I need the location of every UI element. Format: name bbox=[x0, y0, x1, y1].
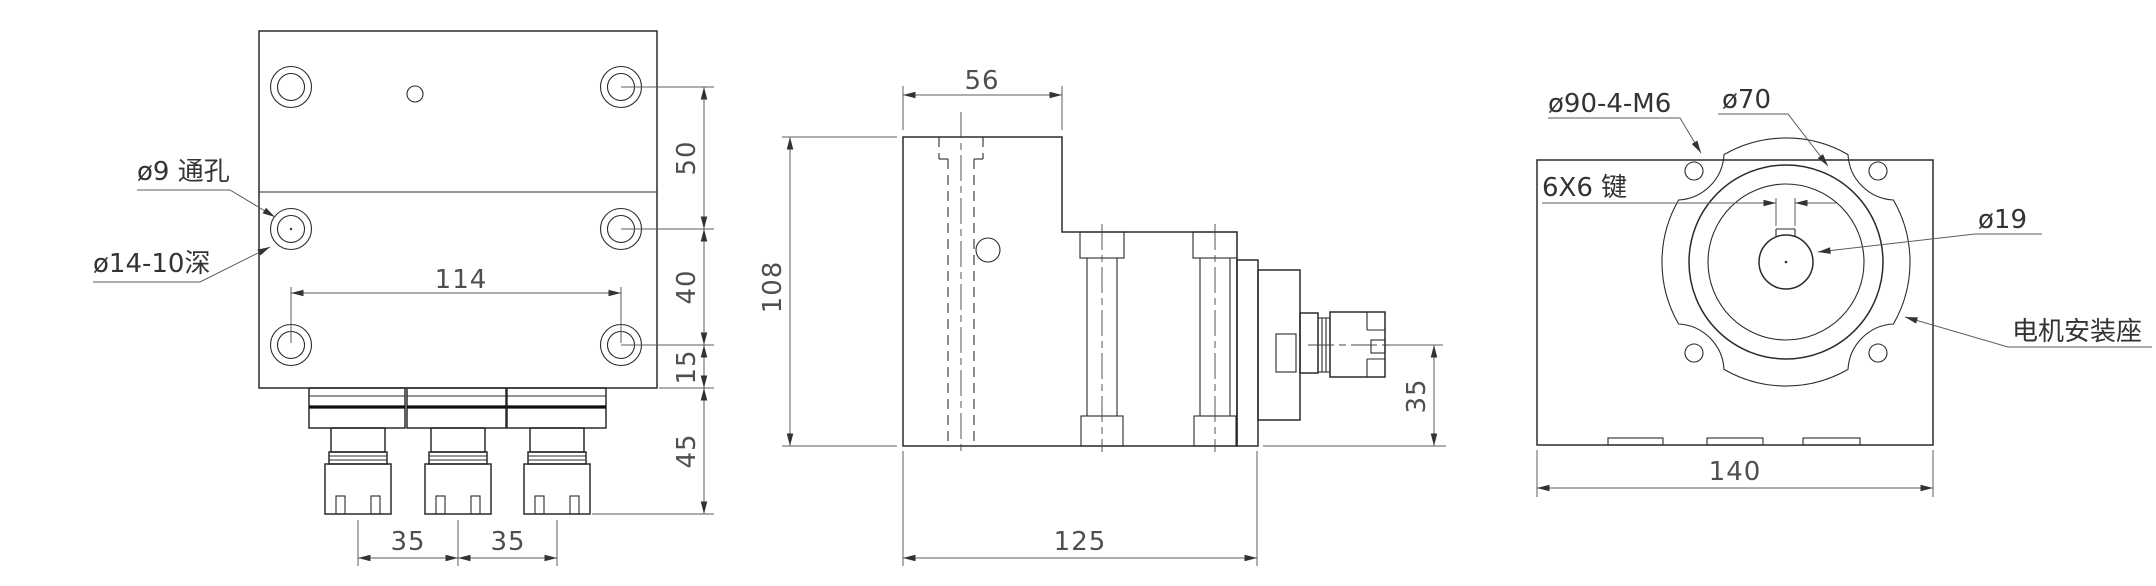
label-counterbore: ø14-10深 bbox=[93, 249, 210, 279]
center-mark bbox=[1785, 261, 1788, 264]
dimension-114: 114 bbox=[291, 265, 621, 343]
motor-mount-view: ø90-4-M6 ø70 6X6 键 ø19 电机安装座 140 bbox=[1537, 85, 2152, 497]
small-pin-hole bbox=[407, 86, 423, 102]
output-spindle bbox=[1237, 260, 1400, 446]
body-outline bbox=[903, 137, 1237, 446]
label-shaft-diameter: ø19 bbox=[1978, 205, 2027, 235]
dim-40-text: 40 bbox=[672, 269, 702, 304]
er-collet-nut bbox=[425, 464, 491, 514]
er-collet-nut bbox=[325, 464, 391, 514]
dimension-56: 56 bbox=[903, 66, 1062, 130]
spindle-nose-3 bbox=[524, 428, 590, 514]
dim-15-text: 15 bbox=[672, 349, 702, 384]
dimension-35-side: 35 bbox=[1263, 345, 1446, 446]
dimension-spindle-pitch: 35 35 bbox=[358, 520, 557, 566]
gear-shaft-3 bbox=[1193, 224, 1237, 452]
gear-shaft-2 bbox=[1080, 224, 1124, 452]
gearbox-blocks bbox=[309, 388, 606, 428]
label-through-hole: ø9 通孔 bbox=[137, 157, 230, 187]
dim-45-text: 45 bbox=[672, 433, 702, 468]
keyway bbox=[1776, 198, 1795, 237]
dim-140-text: 140 bbox=[1709, 457, 1762, 487]
dim-35-side-text: 35 bbox=[1402, 378, 1432, 413]
leader-through-hole bbox=[137, 190, 275, 217]
dim-108-text: 108 bbox=[758, 261, 788, 314]
technical-drawing-canvas: ø9 通孔 ø14-10深 114 50 40 15 45 bbox=[0, 0, 2156, 586]
side-view: 56 108 125 35 bbox=[758, 66, 1446, 566]
label-register-diameter: ø70 bbox=[1722, 85, 1771, 115]
dim-50-text: 50 bbox=[672, 140, 702, 175]
dimension-140: 140 bbox=[1537, 450, 1933, 497]
spindle-nose-1 bbox=[325, 428, 391, 514]
input-bore-hidden bbox=[939, 112, 983, 452]
drawing-sheet: ø9 通孔 ø14-10深 114 50 40 15 45 bbox=[0, 0, 2156, 586]
dim-35-right-text: 35 bbox=[490, 527, 525, 557]
dim-114-text: 114 bbox=[435, 265, 488, 295]
spindle-nose-2 bbox=[425, 428, 491, 514]
plate-bottom-notches bbox=[1608, 438, 1860, 445]
dim-125-text: 125 bbox=[1054, 527, 1107, 557]
er-collet-nut-side bbox=[1330, 312, 1385, 377]
er-collet-nut bbox=[524, 464, 590, 514]
dimension-108: 108 bbox=[758, 137, 897, 446]
dim-56-text: 56 bbox=[964, 66, 999, 96]
dimension-chain-right: 50 40 15 45 bbox=[592, 87, 714, 514]
dimension-125: 125 bbox=[903, 451, 1257, 566]
label-motor-mount: 电机安装座 bbox=[2012, 317, 2142, 347]
label-key: 6X6 键 bbox=[1542, 173, 1627, 203]
label-bolt-circle: ø90-4-M6 bbox=[1548, 89, 1671, 119]
leader-register bbox=[1718, 114, 1828, 166]
mounting-plate-outline bbox=[259, 31, 657, 388]
dim-35-left-text: 35 bbox=[390, 527, 425, 557]
leader-bolt-circle bbox=[1548, 118, 1701, 153]
front-view: ø9 通孔 ø14-10深 114 50 40 15 45 bbox=[93, 31, 714, 566]
face-pin-hole bbox=[976, 238, 1000, 262]
leader-shaft bbox=[1818, 234, 2042, 252]
counterbore-hole-mid-left bbox=[271, 209, 312, 250]
counterbore-hole-top-left bbox=[271, 67, 312, 108]
